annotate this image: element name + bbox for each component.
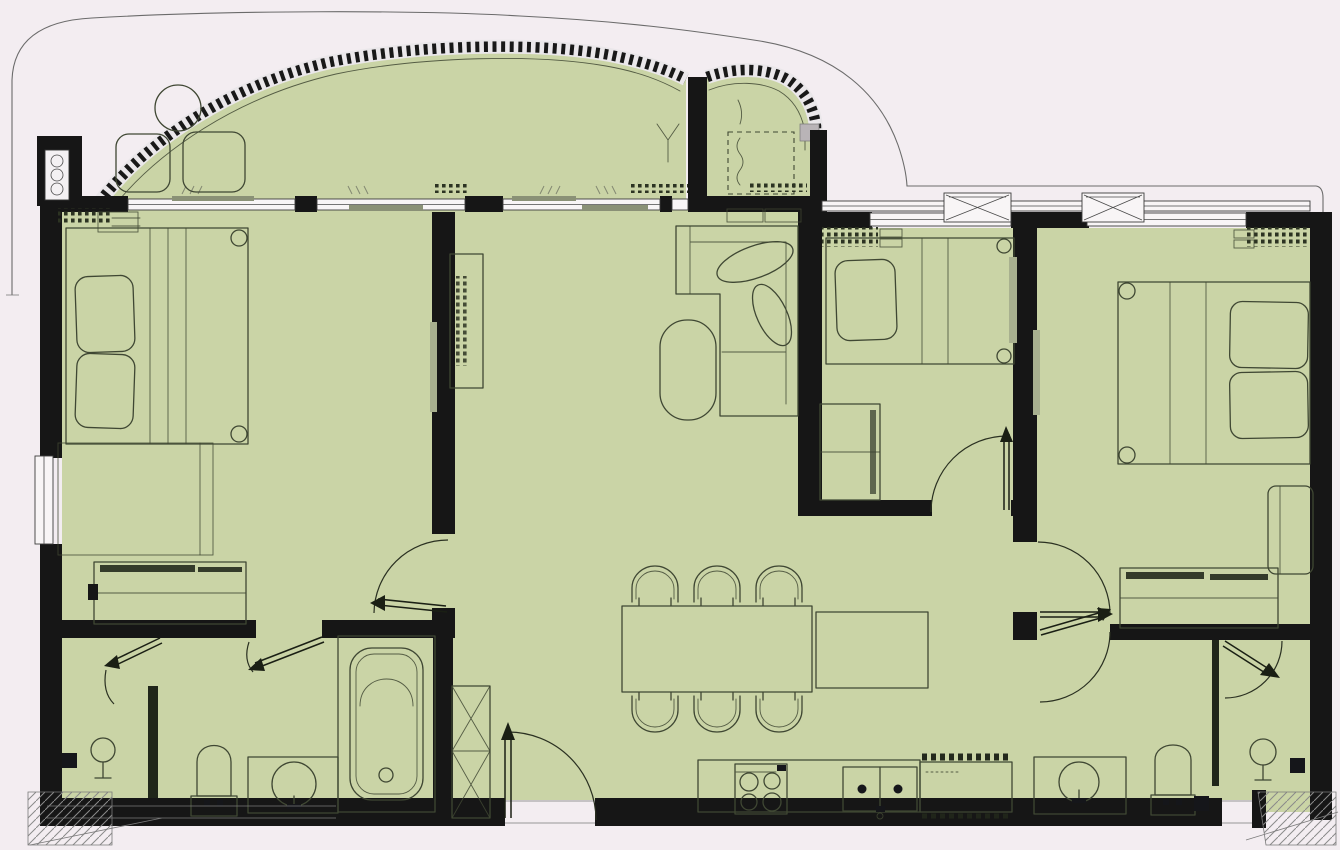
bed-side-rail	[1009, 257, 1017, 343]
floor-plan-page	[0, 0, 1340, 850]
ledge-hatch	[628, 184, 688, 193]
dining-table	[622, 606, 812, 692]
sliding-panel	[172, 196, 254, 201]
ac-unit	[45, 150, 69, 200]
sliding-panel	[349, 205, 423, 210]
wall-radiator	[1033, 330, 1040, 415]
sliding-panel	[512, 196, 576, 201]
shelf-hatch	[822, 227, 878, 247]
ac-condenser-box	[1082, 193, 1144, 222]
shower-partition-2	[1212, 640, 1219, 786]
shelf-hatch	[1246, 227, 1308, 247]
floor-plan-drawing	[0, 0, 1340, 850]
shower-partition-1	[148, 686, 158, 798]
ledge-hatch	[433, 184, 467, 193]
floor-drain	[1290, 758, 1305, 773]
sliding-panel	[582, 205, 648, 210]
tv-icon	[455, 276, 467, 366]
ac-condenser-box	[944, 193, 1011, 222]
bedside-shelf	[58, 208, 112, 224]
wall-radiator	[430, 322, 437, 412]
floor-drain	[62, 753, 77, 768]
ledge-hatch	[747, 183, 807, 192]
unit-floor	[62, 200, 1312, 812]
floor-drain	[1194, 796, 1209, 811]
